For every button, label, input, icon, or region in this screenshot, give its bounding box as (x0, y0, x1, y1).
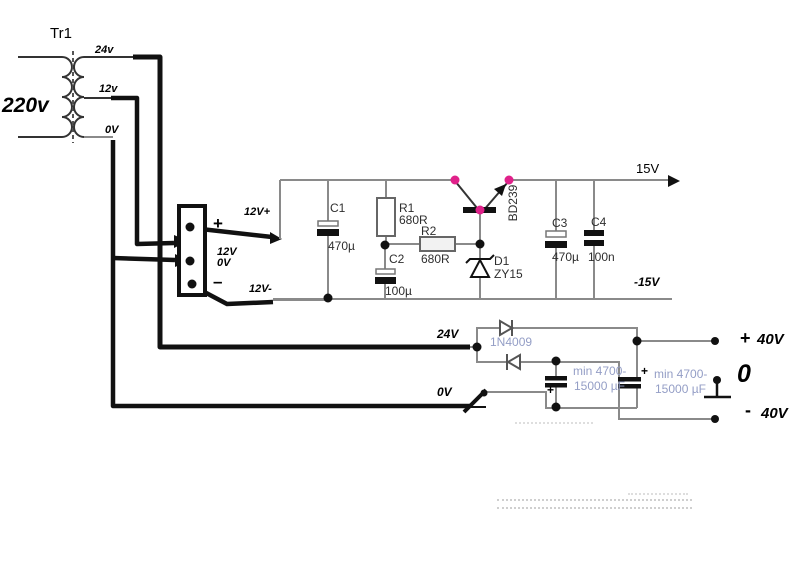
schematic-power-supply: Tr1 220v 24v 12v 0V + – 12V 0V 12V+ 12V-… (0, 0, 800, 565)
watermark-dots-row2 (497, 507, 692, 509)
fcap1-note-line2: 15000 µF (574, 380, 625, 392)
c3-plate-bottom (545, 241, 567, 248)
d1-ref: D1 (494, 255, 509, 267)
feed-wire-12v (111, 98, 174, 244)
tap-0v-label: 0V (105, 125, 118, 136)
block-minus-label: – (213, 273, 222, 290)
in-0v-label: 0V (437, 386, 452, 398)
tap-24v-label: 24v (95, 45, 113, 56)
primary-coil (62, 57, 72, 137)
c3-value: 470µ (552, 251, 579, 263)
q1-emitter-arrow (494, 184, 506, 196)
c3-ref: C3 (552, 217, 567, 229)
r2-ref: R2 (421, 225, 436, 237)
c1-plate-top (318, 221, 338, 226)
terminal-dot-minus (188, 280, 197, 289)
diode-bottom-triangle (508, 355, 520, 369)
out-zero-label: 0 (737, 362, 751, 387)
out-pos-sign: + (740, 329, 751, 347)
cap-c4 (584, 230, 604, 246)
terminal-dot-zero (713, 376, 721, 384)
d1-value: ZY15 (494, 268, 523, 280)
junction-dot (552, 357, 561, 366)
junction-dot (552, 403, 561, 412)
fcap1-note-line1: min 4700- (573, 365, 626, 377)
transformer-ref: Tr1 (50, 26, 72, 41)
wire-12v-minus-label: 12V- (249, 284, 272, 295)
c4-plate-top (584, 230, 604, 236)
wire-12v-plus-label: 12V+ (244, 207, 270, 218)
q1-collector (455, 181, 477, 208)
secondary-coil (74, 57, 84, 137)
feed-wire-24v (133, 57, 470, 347)
c4-ref: C4 (591, 216, 606, 228)
diode-top-triangle (500, 321, 512, 335)
block-plus-label: + (213, 215, 223, 232)
feed-wires (111, 57, 470, 406)
junction-dot (476, 240, 485, 249)
d1-triangle (471, 260, 489, 277)
r2-value: 680R (421, 253, 450, 265)
junction-dot (473, 343, 482, 352)
c2-plate-top (376, 269, 395, 274)
terminal-block (179, 206, 205, 295)
cap-c1 (317, 221, 339, 236)
watermark-smudge (515, 422, 593, 424)
c2-ref: C2 (389, 253, 404, 265)
fcap2-note-line2: 15000 µF (655, 383, 706, 395)
wire-0v-thin (484, 392, 637, 408)
out-neg-sign: - (745, 401, 751, 419)
fcap2-note-line1: min 4700- (654, 368, 707, 380)
transistor-bd239 (451, 176, 514, 215)
c3-plate-top (546, 231, 566, 237)
res-r1 (377, 198, 395, 236)
feed-branch-0v-block (113, 258, 175, 260)
terminal-dot-plus (186, 223, 195, 232)
rectifier-diode-bottom (507, 354, 520, 370)
rail-pos-label: 15V (636, 162, 659, 175)
primary-voltage-label: 220v (2, 95, 49, 116)
fcap1-plate-top (545, 376, 567, 381)
zener-d1 (466, 255, 494, 277)
c1-plate-bottom (317, 229, 339, 236)
diode-type-label: 1N4009 (490, 336, 532, 348)
fcap1-plus: + (547, 384, 554, 396)
out-pos-label: 40V (757, 332, 784, 347)
rail-neg-label: -15V (634, 276, 659, 288)
junction-dot (324, 294, 333, 303)
block-0v-label: 0V (217, 258, 230, 269)
rectifier-diode-top (500, 320, 512, 336)
terminal-dot-plus40 (711, 337, 719, 345)
res-r2 (420, 237, 455, 251)
q1-ref: BD239 (507, 183, 521, 223)
terminal-dot-mid (186, 257, 195, 266)
wiring-svg (0, 0, 800, 565)
arrow-15v-rail (668, 175, 680, 187)
c4-plate-bottom (584, 240, 604, 246)
cap-c3 (545, 231, 567, 248)
in-24v-label: 24V (437, 328, 458, 340)
watermark-dots-row1 (497, 499, 692, 501)
cap-c2 (375, 269, 396, 284)
c1-value: 470µ (328, 240, 355, 252)
c2-value: 100µ (385, 285, 412, 297)
c1-ref: C1 (330, 202, 345, 214)
out-neg-label: 40V (761, 406, 788, 421)
terminal-dot-minus40 (711, 415, 719, 423)
junction-dot (381, 241, 390, 250)
watermark-smudge-2 (628, 493, 688, 495)
fcap2-plus: + (641, 365, 648, 377)
q1-pin-dot-collector (451, 176, 460, 185)
junction-dot (633, 337, 642, 346)
q1-pin-dot-base (476, 206, 485, 215)
c2-plate-bottom (375, 277, 396, 284)
tap-12v-label: 12v (99, 84, 117, 95)
junction-dot (481, 390, 488, 397)
c4-value: 100n (588, 251, 615, 263)
